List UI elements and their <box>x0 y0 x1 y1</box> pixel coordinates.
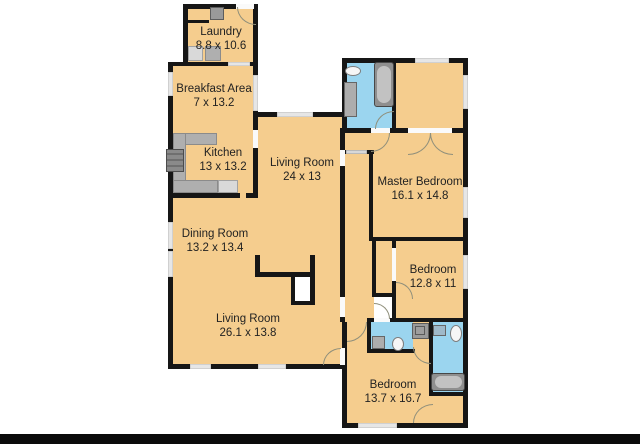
top-right-room-fill <box>395 61 466 130</box>
room-name: Living Room <box>270 156 334 170</box>
sink-icon <box>433 325 446 336</box>
room-dims: 8.8 x 10.6 <box>196 39 247 53</box>
room-label-bedroom-mid: Bedroom 12.8 x 11 <box>410 263 457 291</box>
bathtub-icon <box>374 62 394 107</box>
wall <box>369 154 373 241</box>
door-opening <box>253 130 258 148</box>
bathtub-icon <box>431 373 465 391</box>
room-name: Bedroom <box>410 263 457 277</box>
window <box>190 364 211 369</box>
door-opening <box>340 150 345 166</box>
room-dims: 24 x 13 <box>270 170 334 184</box>
wall <box>246 193 258 198</box>
window <box>168 251 173 277</box>
room-label-kitchen: Kitchen 13 x 13.2 <box>199 146 246 174</box>
room-name: Dining Room <box>182 227 248 241</box>
door-opening <box>340 297 345 317</box>
toilet-icon <box>450 325 462 342</box>
door-opening <box>392 248 396 281</box>
window <box>168 222 173 249</box>
room-label-master: Master Bedroom 16.1 x 14.8 <box>377 175 462 203</box>
sink-icon <box>345 66 361 76</box>
room-dims: 26.1 x 13.8 <box>216 326 280 340</box>
room-dims: 13 x 13.2 <box>199 160 246 174</box>
wall <box>372 241 376 297</box>
fireplace-wall <box>291 301 314 305</box>
dining-living-fill <box>171 197 342 367</box>
wall <box>367 349 415 353</box>
room-label-bedroom-bottom: Bedroom 13.7 x 16.7 <box>365 378 422 406</box>
bottom-bar <box>0 434 640 444</box>
room-dims: 12.8 x 11 <box>410 277 457 291</box>
room-label-living-upper: Living Room 24 x 13 <box>270 156 334 184</box>
wall <box>372 293 396 297</box>
room-dims: 13.2 x 13.4 <box>182 241 248 255</box>
floorplan-canvas: Laundry 8.8 x 10.6 Breakfast Area 7 x 13… <box>0 0 640 444</box>
window <box>463 75 468 109</box>
room-name: Master Bedroom <box>377 175 462 189</box>
window <box>168 72 173 96</box>
shower-icon <box>412 323 429 339</box>
wall <box>168 193 240 198</box>
window <box>253 75 258 111</box>
wall <box>184 20 209 23</box>
fireplace-wall <box>310 255 315 305</box>
window <box>277 112 313 117</box>
room-label-dining: Dining Room 13.2 x 13.4 <box>182 227 248 255</box>
bathroom-cabinet-icon <box>344 82 357 117</box>
window <box>358 423 397 428</box>
toilet-icon <box>392 337 404 351</box>
wall <box>367 318 371 353</box>
sink-icon <box>372 336 385 349</box>
fireplace-icon <box>295 277 310 301</box>
window <box>258 364 286 369</box>
room-name: Kitchen <box>199 146 246 160</box>
room-label-breakfast: Breakfast Area 7 x 13.2 <box>176 82 251 110</box>
room-label-laundry: Laundry 8.8 x 10.6 <box>196 25 247 53</box>
laundry-appliance-icon <box>210 7 224 20</box>
room-label-living-lower: Living Room 26.1 x 13.8 <box>216 312 280 340</box>
window <box>228 62 250 66</box>
door-arc <box>374 303 390 319</box>
window <box>463 187 468 218</box>
room-dims: 7 x 13.2 <box>176 96 251 110</box>
room-dims: 13.7 x 16.7 <box>365 392 422 406</box>
closet-slider-door <box>346 150 367 154</box>
dishwasher-icon <box>218 180 238 193</box>
wall <box>369 237 468 241</box>
window <box>415 58 449 63</box>
wall <box>463 58 468 427</box>
kitchen-counter-icon <box>173 180 218 193</box>
room-name: Bedroom <box>365 378 422 392</box>
window <box>463 255 468 289</box>
room-name: Breakfast Area <box>176 82 251 96</box>
wall <box>342 58 468 63</box>
room-name: Laundry <box>196 25 247 39</box>
stove-icon <box>166 149 184 172</box>
room-name: Living Room <box>216 312 280 326</box>
room-dims: 16.1 x 14.8 <box>377 189 462 203</box>
wall <box>429 392 468 396</box>
